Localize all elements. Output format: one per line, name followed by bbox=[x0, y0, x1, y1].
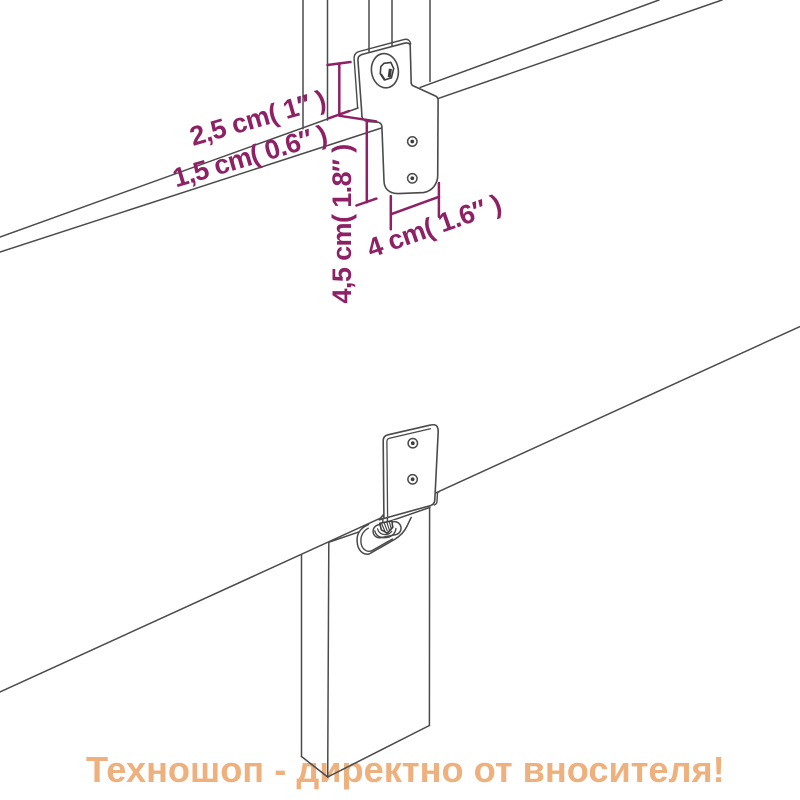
svg-text:4,5 cm( 1.8″ ): 4,5 cm( 1.8″ ) bbox=[327, 144, 357, 303]
svg-text:Техношоп - директно от вносите: Техношоп - директно от вносителя! bbox=[86, 749, 725, 790]
